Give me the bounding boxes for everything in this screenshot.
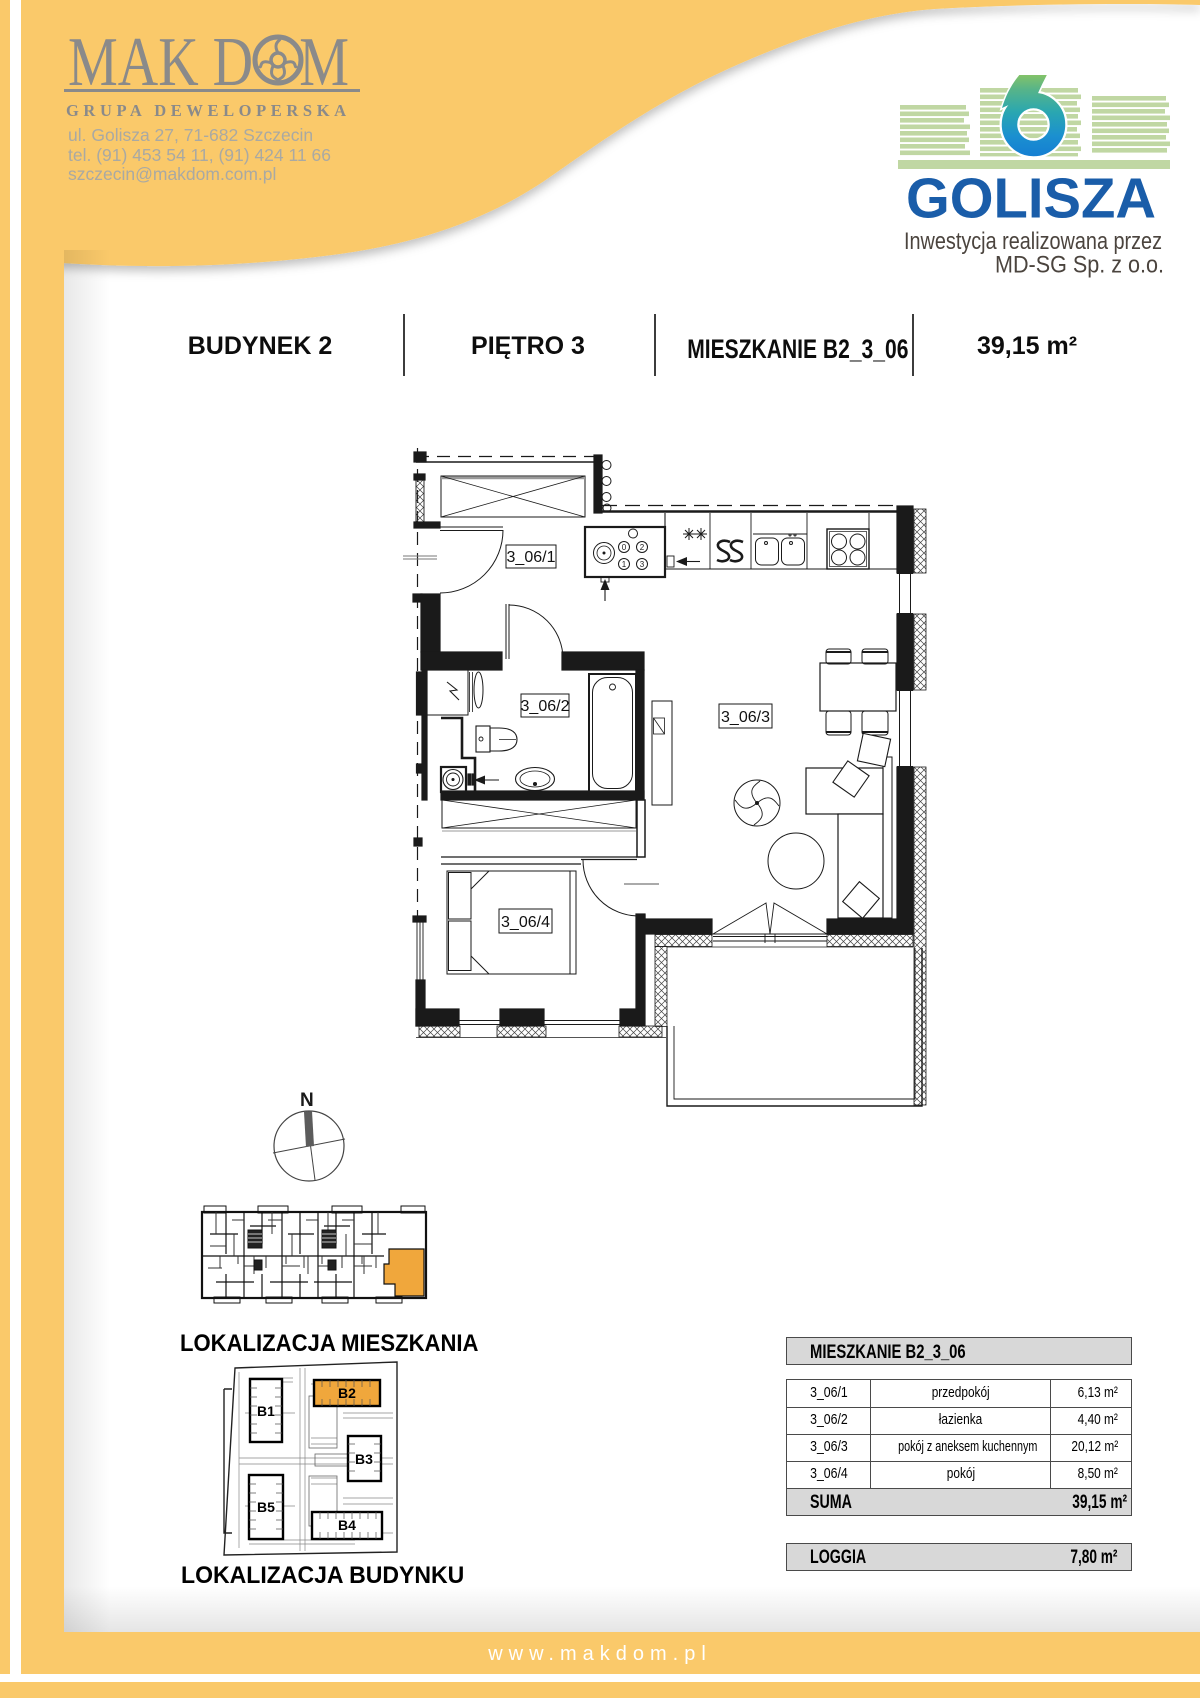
svg-text:B4: B4 <box>338 1517 356 1533</box>
svg-text:B3: B3 <box>355 1451 373 1467</box>
svg-text:3: 3 <box>640 560 645 569</box>
svg-text:2: 2 <box>640 543 645 552</box>
svg-text:0: 0 <box>622 543 627 552</box>
svg-text:3_06/3: 3_06/3 <box>721 709 770 726</box>
svg-text:B5: B5 <box>257 1499 275 1515</box>
svg-text:N: N <box>300 1090 314 1111</box>
svg-text:B2: B2 <box>338 1385 356 1401</box>
svg-text:3_06/2: 3_06/2 <box>521 698 570 715</box>
svg-text:3_06/4: 3_06/4 <box>501 914 550 931</box>
svg-text:MAK D: MAK D <box>68 23 253 97</box>
svg-text:GOLISZA: GOLISZA <box>906 167 1156 231</box>
svg-text:1: 1 <box>622 560 627 569</box>
svg-text:MD-SG Sp. z o.o.: MD-SG Sp. z o.o. <box>995 252 1164 279</box>
svg-text:3_06/1: 3_06/1 <box>507 549 556 566</box>
svg-text:M: M <box>299 23 349 97</box>
svg-text:B1: B1 <box>257 1403 275 1419</box>
